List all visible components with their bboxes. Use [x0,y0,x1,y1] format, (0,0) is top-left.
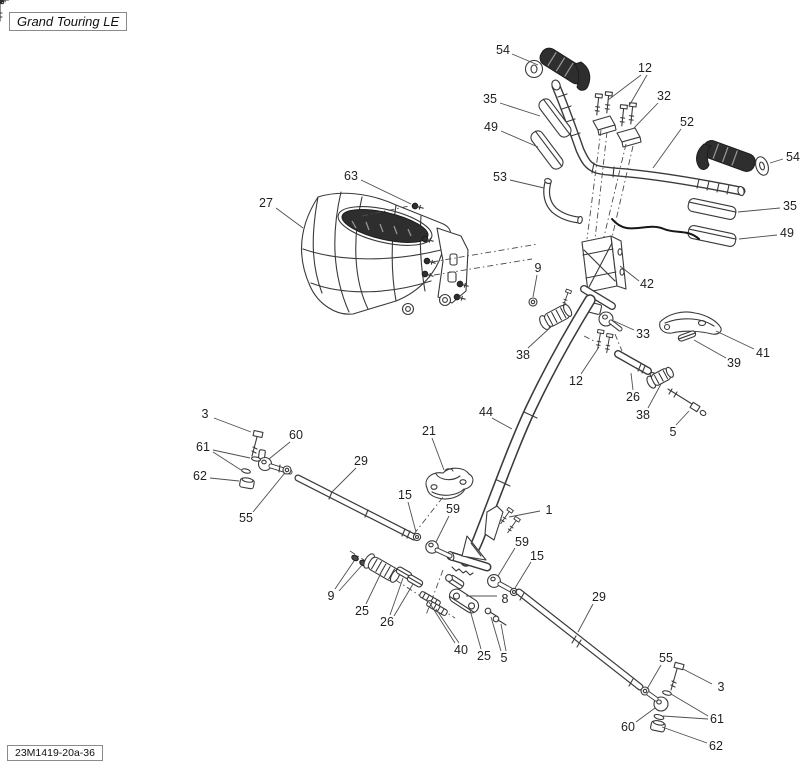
leader-line [578,604,593,632]
leader-line [662,727,707,743]
callout-label-55: 55 [659,651,673,665]
bolt-5-small-part [485,608,506,625]
callout-label-15: 15 [530,549,544,563]
callout-label-54: 54 [496,43,510,57]
leader-line [631,373,633,390]
callout-label-39: 39 [727,356,741,370]
callout-label-54: 54 [786,150,800,164]
callout-label-8: 8 [502,592,509,606]
link-sleeve-26-part [618,354,657,378]
handlebar-part [550,79,745,196]
leader-line [663,716,708,719]
cap-nut-62-part [239,477,255,489]
callout-label-3: 3 [718,680,725,694]
callout-label-21: 21 [422,424,436,438]
callout-label-59: 59 [446,502,460,516]
callout-label-29: 29 [592,590,606,604]
callout-label-60: 60 [289,428,303,442]
leader-line [253,474,284,512]
callout-label-60: 60 [621,720,635,734]
washer-61-part [654,714,665,721]
callout-label-35: 35 [783,199,797,213]
leader-line [498,548,515,576]
callout-label-40: 40 [454,643,468,657]
ball-joint-60-right-part [649,694,668,711]
leader-line [500,103,540,116]
leader-line [470,610,481,649]
callout-label-5: 5 [670,425,677,439]
callout-label-49: 49 [484,120,498,134]
console-screw [412,203,424,211]
callout-label-52: 52 [680,115,694,129]
sleeve-26-part [406,574,423,588]
leader-line [608,75,641,100]
stopper-bracket-41-part [660,312,722,342]
callout-label-9: 9 [535,261,542,275]
leader-line [408,502,416,532]
leader-line [629,75,647,106]
bolt-3-right-part [671,662,684,690]
callout-label-26: 26 [380,615,394,629]
callout-label-62: 62 [709,739,723,753]
callout-label-38: 38 [516,348,530,362]
callout-label-44: 44 [479,405,493,419]
callout-label-38: 38 [636,408,650,422]
callout-label-41: 41 [756,346,770,360]
callout-label-26: 26 [626,390,640,404]
callout-label-33: 33 [636,327,650,341]
leader-line [213,450,250,458]
leader-line [581,347,599,374]
hook-bar-53-part [544,178,583,224]
jam-nut-55-part [283,466,291,474]
leader-line [436,609,459,643]
leader-line [436,516,449,542]
leader-line [770,159,783,163]
callout-label-15: 15 [398,488,412,502]
leader-line [501,624,506,651]
leader-line [214,418,251,432]
callout-label-12: 12 [638,61,652,75]
callout-label-35: 35 [483,92,497,106]
leader-line [366,573,381,604]
callout-label-9: 9 [328,589,335,603]
callout-label-1: 1 [546,503,553,517]
leader-line [633,103,658,129]
leader-line [716,331,754,349]
leader-line [510,180,544,188]
clamp-25-part [362,552,402,585]
leader-line [432,438,444,470]
washer-61-part [241,468,251,474]
ball-joint-33-part [599,312,620,329]
leader-line [647,665,661,689]
callout-label-55: 55 [239,511,253,525]
callout-label-25: 25 [477,649,491,663]
leader-line [394,584,413,616]
leader-line [331,468,356,493]
link-8-part [447,586,481,615]
cap-nut-62-part [650,719,666,732]
leader-line [636,708,655,722]
callout-label-32: 32 [657,89,671,103]
callout-label-61: 61 [196,440,210,454]
diagram-page: Grand Touring LE 23M1419-20a-36 [0,0,800,766]
foam-grips-right-part [687,198,737,248]
callout-label-3: 3 [202,407,209,421]
tie-rod-left-part [239,431,450,556]
callout-label-61: 61 [710,712,724,726]
washer-61-part [662,690,672,696]
leader-line [694,340,726,358]
callout-label-62: 62 [193,469,207,483]
steering-arm-part [414,468,473,534]
callout-label-53: 53 [493,170,507,184]
callout-label-25: 25 [355,604,369,618]
leader-line [390,578,403,615]
leader-line [509,511,540,517]
leader-line [739,235,777,239]
leader-line [653,129,681,168]
callout-label-42: 42 [640,277,654,291]
steering-column-part [447,300,590,575]
leader-line [683,669,712,684]
diagram-canvas: 5412323549525354354963274293341393812263… [0,0,800,766]
callout-label-49: 49 [780,226,794,240]
callout-label-63: 63 [344,169,358,183]
leader-line [676,411,689,425]
leader-line [738,208,780,212]
leader-line [515,562,531,588]
leader-line [671,694,708,716]
leader-line [210,478,239,481]
leader-line [269,442,290,459]
handle-grip-right-part [697,138,771,177]
callout-label-27: 27 [259,196,273,210]
callout-label-59: 59 [515,535,529,549]
callout-label-5: 5 [501,651,508,665]
callout-label-12: 12 [569,374,583,388]
leader-line [492,418,512,429]
leader-line [533,275,537,297]
throttle-cable [612,219,699,239]
leader-line [512,54,538,65]
riser-block-part [582,236,626,292]
leader-line [528,325,553,348]
callout-label-29: 29 [354,454,368,468]
console-part [0,0,538,314]
leader-line [276,208,303,228]
